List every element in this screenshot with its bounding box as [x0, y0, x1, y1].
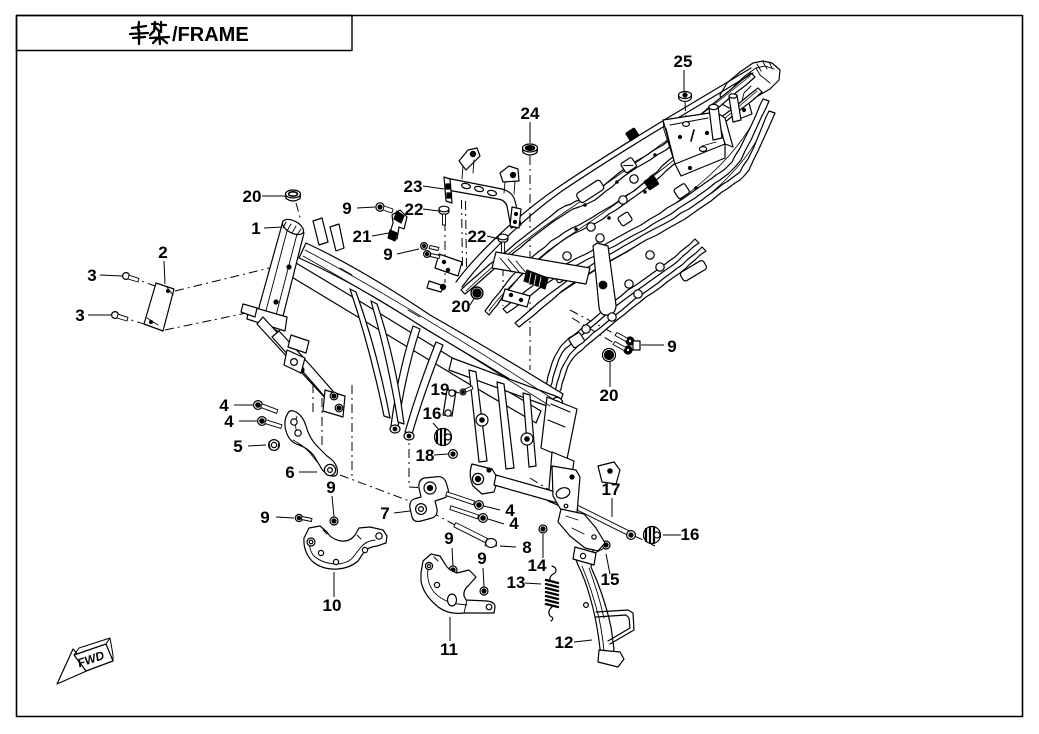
svg-text:7: 7 [380, 504, 389, 523]
svg-text:9: 9 [477, 549, 486, 568]
svg-text:22: 22 [468, 227, 487, 246]
svg-text:6: 6 [285, 463, 294, 482]
svg-text:13: 13 [507, 573, 526, 592]
svg-text:9: 9 [383, 245, 392, 264]
svg-text:9: 9 [667, 337, 676, 356]
svg-text:3: 3 [87, 266, 96, 285]
svg-text:23: 23 [404, 177, 423, 196]
svg-text:4: 4 [509, 514, 519, 533]
svg-text:4: 4 [224, 412, 234, 431]
svg-text:25: 25 [674, 52, 693, 71]
svg-text:16: 16 [681, 525, 700, 544]
svg-text:1: 1 [251, 219, 260, 238]
svg-text:14: 14 [528, 556, 547, 575]
svg-text:12: 12 [555, 633, 574, 652]
svg-text:9: 9 [326, 478, 335, 497]
svg-text:/FRAME: /FRAME [172, 24, 249, 46]
svg-text:20: 20 [600, 386, 619, 405]
svg-text:18: 18 [416, 446, 435, 465]
svg-text:9: 9 [444, 529, 453, 548]
svg-text:22: 22 [405, 200, 424, 219]
svg-text:10: 10 [323, 596, 342, 615]
svg-text:2: 2 [158, 243, 167, 262]
svg-text:5: 5 [233, 437, 242, 456]
svg-text:20: 20 [243, 187, 262, 206]
svg-text:20: 20 [452, 297, 471, 316]
svg-text:8: 8 [522, 538, 531, 557]
svg-text:9: 9 [260, 508, 269, 527]
svg-text:3: 3 [75, 306, 84, 325]
svg-text:16: 16 [423, 404, 442, 423]
svg-text:11: 11 [440, 640, 458, 659]
svg-text:9: 9 [342, 199, 351, 218]
svg-text:24: 24 [521, 104, 540, 123]
svg-text:21: 21 [353, 227, 372, 246]
